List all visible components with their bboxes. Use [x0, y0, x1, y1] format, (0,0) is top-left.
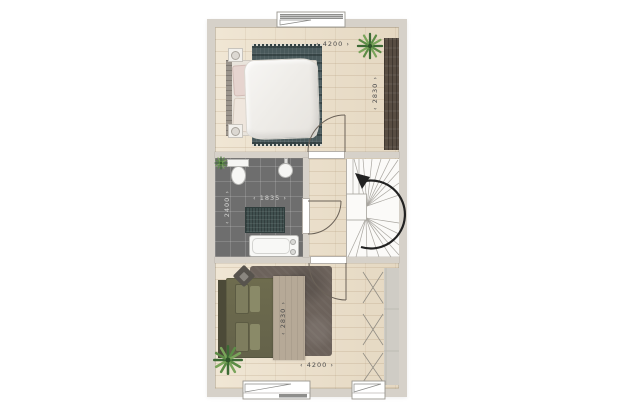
pillow-icon	[250, 286, 260, 312]
door-threshold-bathroom	[302, 198, 310, 234]
bathtub-icon	[249, 235, 299, 257]
nightstand-icon	[228, 124, 243, 138]
pillow-icon	[235, 322, 249, 352]
floorplan-stage: 4200 2830 1835 2400 2830 4200	[0, 0, 620, 420]
dim-bedroom-bottom-depth: 2830	[279, 301, 287, 335]
floorplan: 4200 2830 1835 2400 2830 4200	[207, 19, 407, 397]
wall-bedroom-bottom	[215, 257, 399, 263]
washbasin-icon	[278, 163, 293, 178]
staircase-area	[346, 159, 399, 257]
lamp-icon	[231, 127, 240, 136]
window-icon-top	[277, 12, 345, 27]
door-threshold-bedroom-top	[308, 151, 345, 159]
duvet-icon	[244, 58, 321, 141]
lamp-icon	[231, 51, 240, 60]
tap-knob	[290, 239, 296, 245]
pillow-icon	[250, 324, 260, 350]
headboard	[218, 280, 226, 358]
tap-icon	[284, 158, 288, 164]
toilet-bowl	[231, 166, 246, 185]
nightstand-icon	[228, 48, 243, 62]
dim-bathroom-width: 1835	[253, 194, 287, 202]
dim-bedroom-bottom-width: 4200	[300, 361, 334, 369]
wardrobe-icon	[384, 38, 399, 150]
dim-bedroom-top-depth: 2830	[371, 76, 379, 110]
tap-knob	[290, 249, 296, 255]
dim-bathroom-depth: 2400	[223, 190, 231, 224]
blanket-icon	[273, 276, 305, 360]
dim-bedroom-top-width: 4200	[316, 40, 350, 48]
wardrobe-icon	[384, 268, 399, 385]
door-threshold-bedroom-bottom	[310, 256, 347, 264]
pillow-icon	[235, 284, 249, 314]
shower-mat-icon	[245, 207, 285, 233]
